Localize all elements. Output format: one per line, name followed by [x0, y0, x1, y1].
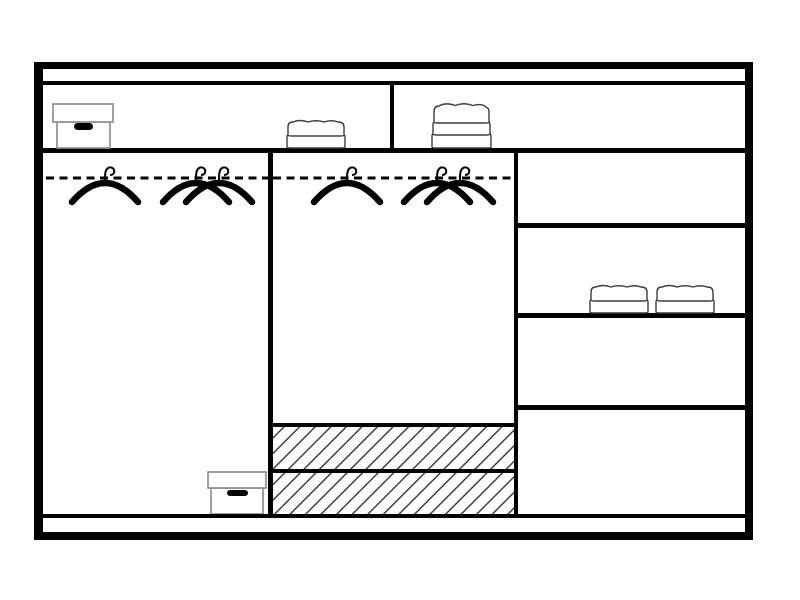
left-hanging-compartment — [46, 167, 268, 514]
box-lid — [53, 104, 113, 122]
drawer-stack — [273, 423, 514, 514]
right-shelf-column — [514, 223, 745, 410]
wardrobe-diagram-canvas — [0, 0, 800, 600]
towel-stack — [656, 286, 714, 314]
top-shelf-board — [43, 148, 745, 153]
box-handle — [74, 123, 93, 130]
top-shelf — [43, 85, 745, 153]
box-handle — [227, 490, 248, 496]
middle-hanging-compartment — [273, 167, 514, 514]
top-shelf-divider — [390, 85, 394, 148]
hanger — [72, 167, 138, 202]
storage-box — [53, 104, 113, 148]
drawer-separator — [273, 469, 514, 473]
left-middle-divider — [268, 153, 273, 514]
towel-stack — [287, 121, 345, 149]
drawer-hatch — [273, 427, 514, 469]
bottom-board — [43, 514, 745, 518]
shelf-board — [514, 405, 745, 410]
storage-box — [208, 472, 266, 514]
shelf-board — [514, 313, 745, 318]
drawer-top-edge — [273, 423, 514, 427]
drawer-hatch — [273, 473, 514, 514]
towel-stack — [590, 286, 648, 314]
middle-right-divider — [514, 153, 518, 514]
towel-stack — [432, 104, 491, 148]
wardrobe-interior-art — [43, 69, 745, 532]
shelf-board — [514, 223, 745, 228]
wardrobe-frame — [34, 62, 753, 540]
hanger — [314, 167, 380, 202]
top-panel-line — [43, 81, 745, 85]
box-lid — [208, 472, 266, 488]
